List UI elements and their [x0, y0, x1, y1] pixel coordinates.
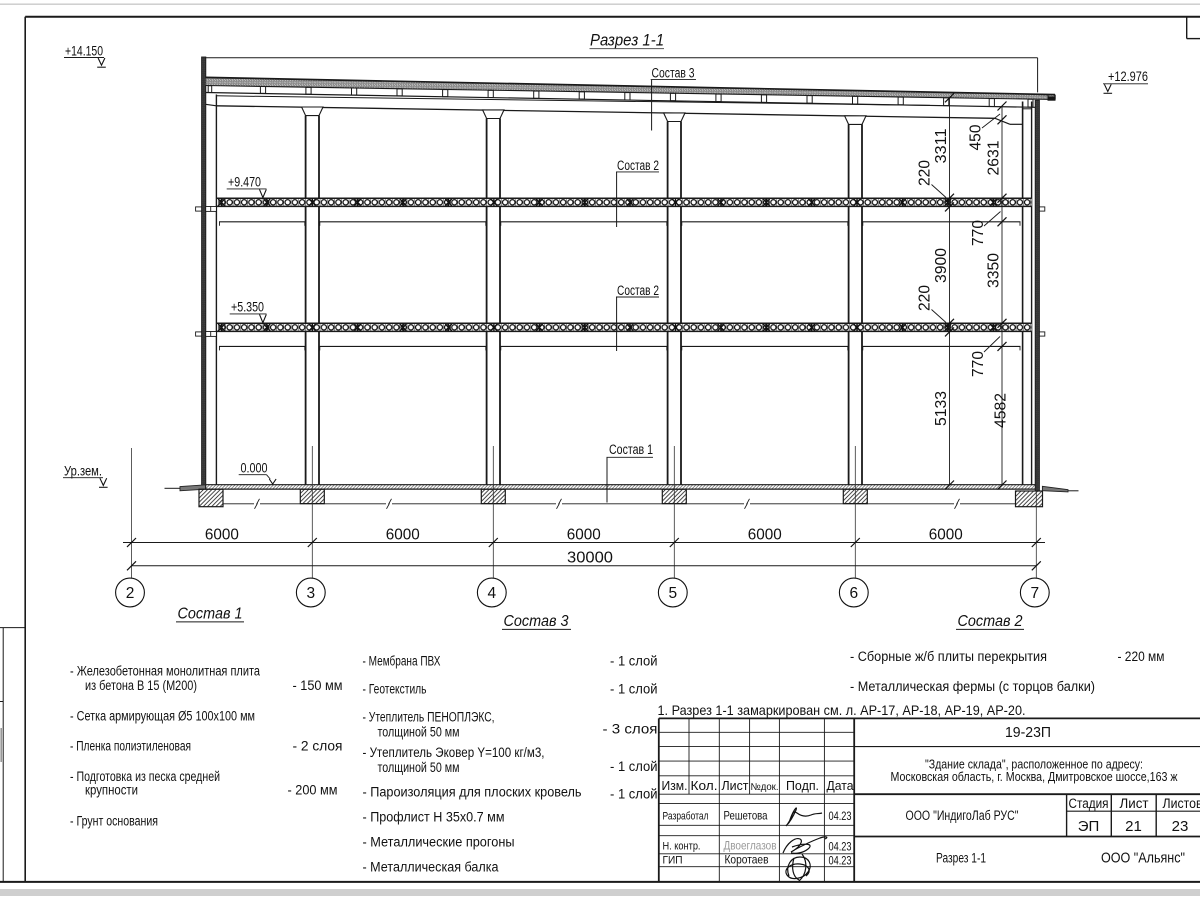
svg-text:- Металлическая фермы (с торцо: - Металлическая фермы (с торцов балки) — [850, 679, 1095, 694]
svg-text:Подп.: Подп. — [786, 778, 819, 793]
svg-text:6000: 6000 — [386, 527, 420, 544]
svg-text:5133: 5133 — [933, 391, 950, 426]
svg-text:- 1 слой: - 1 слой — [610, 654, 658, 669]
svg-text:Московская область, г. Москва,: Московская область, г. Москва, Дмитровск… — [891, 769, 1178, 784]
svg-text:Состав 2: Состав 2 — [617, 283, 659, 298]
svg-text:23: 23 — [1172, 818, 1189, 835]
svg-text:6000: 6000 — [929, 527, 963, 544]
svg-text:0.000: 0.000 — [241, 461, 268, 476]
svg-text:19-23П: 19-23П — [1005, 724, 1051, 741]
svg-text:3900: 3900 — [933, 248, 950, 283]
svg-text:770: 770 — [970, 220, 987, 246]
svg-text:- 200 мм: - 200 мм — [288, 783, 338, 798]
svg-text:21: 21 — [1125, 818, 1142, 835]
svg-text:Разрез 1-1: Разрез 1-1 — [936, 851, 986, 866]
svg-text:Двоеглазов: Двоеглазов — [724, 839, 777, 853]
svg-text:220: 220 — [917, 285, 934, 311]
svg-text:Состав 2: Состав 2 — [958, 613, 1023, 630]
svg-text:04.23: 04.23 — [829, 842, 852, 854]
svg-text:+9.470: +9.470 — [228, 175, 261, 190]
svg-text:+12.976: +12.976 — [1108, 69, 1148, 84]
svg-text:- 2 слоя: - 2 слоя — [293, 739, 343, 754]
svg-text:- 220 мм: - 220 мм — [1118, 649, 1165, 664]
svg-text:Состав 2: Состав 2 — [617, 158, 659, 173]
svg-text:ГИП: ГИП — [663, 855, 683, 867]
svg-text:Листов: Листов — [1163, 796, 1200, 811]
svg-text:6000: 6000 — [748, 527, 782, 544]
svg-text:6000: 6000 — [205, 527, 239, 544]
svg-text:770: 770 — [970, 351, 987, 377]
svg-text:- Геотекстиль: - Геотекстиль — [363, 682, 427, 697]
svg-text:ООО "Альянс": ООО "Альянс" — [1101, 849, 1185, 866]
svg-text:Коротаев: Коротаев — [725, 853, 769, 867]
svg-text:толщиной 50 мм: толщиной 50 мм — [378, 760, 460, 775]
svg-text:5: 5 — [668, 585, 677, 602]
svg-text:Кол.: Кол. — [691, 778, 718, 793]
svg-text:Лист: Лист — [1120, 796, 1149, 811]
svg-text:30000: 30000 — [567, 550, 613, 567]
svg-text:- Мембрана ПВХ: - Мембрана ПВХ — [363, 654, 441, 669]
svg-text:3: 3 — [306, 585, 315, 602]
svg-text:- Металлическая балка: - Металлическая балка — [363, 860, 499, 875]
svg-text:- Грунт основания: - Грунт основания — [70, 814, 158, 829]
svg-text:Ур.зем.: Ур.зем. — [64, 464, 102, 479]
svg-text:4: 4 — [487, 585, 496, 602]
svg-text:220: 220 — [917, 160, 934, 186]
svg-text:- 1 слой: - 1 слой — [610, 682, 658, 697]
svg-text:Решетова: Решетова — [724, 809, 768, 823]
svg-text:6: 6 — [849, 585, 858, 602]
svg-text:- Железобетонная монолитная п: - Железобетонная монолитная плита — [70, 663, 260, 678]
svg-text:450: 450 — [968, 124, 985, 150]
svg-text:- Сетка армирующая Ø5 100х100: - Сетка армирующая Ø5 100х100 мм — [70, 709, 255, 724]
svg-text:04.23: 04.23 — [829, 856, 852, 868]
svg-text:ООО "ИндигоЛаб РУС": ООО "ИндигоЛаб РУС" — [906, 808, 1019, 823]
svg-text:№док.: №док. — [751, 782, 779, 793]
svg-text:3350: 3350 — [986, 253, 1003, 288]
svg-text:- 3 слоя: - 3 слоя — [603, 722, 658, 737]
svg-text:- Пленка полиэтиленовая: - Пленка полиэтиленовая — [70, 739, 191, 754]
svg-text:- 150 мм: - 150 мм — [293, 678, 343, 693]
svg-text:- Пароизоляция для плоских кро: - Пароизоляция для плоских кровель — [363, 785, 582, 800]
svg-text:ЭП: ЭП — [1078, 818, 1100, 835]
svg-text:Разрез 1-1: Разрез 1-1 — [590, 32, 664, 50]
svg-text:2631: 2631 — [986, 141, 1003, 176]
svg-text:Состав 1: Состав 1 — [609, 442, 653, 457]
svg-text:- Утеплитель Эковер Y=100 кг/м: - Утеплитель Эковер Y=100 кг/м3, — [363, 745, 545, 760]
svg-text:4582: 4582 — [993, 393, 1010, 428]
svg-text:- Профлист Н 35х0.7 мм: - Профлист Н 35х0.7 мм — [363, 810, 505, 825]
svg-text:6000: 6000 — [567, 527, 601, 544]
svg-text:крупности: крупности — [85, 783, 138, 798]
svg-text:Разработал: Разработал — [663, 811, 709, 823]
svg-text:7: 7 — [1030, 585, 1039, 602]
svg-text:Состав 1: Состав 1 — [178, 606, 243, 623]
svg-text:Стадия: Стадия — [1069, 796, 1109, 811]
svg-text:Дата: Дата — [827, 778, 855, 793]
svg-text:Состав 3: Состав 3 — [504, 613, 569, 630]
svg-text:04.23: 04.23 — [829, 811, 852, 823]
svg-text:Изм.: Изм. — [662, 778, 688, 793]
svg-text:1. Разрез 1-1 замаркирован см.: 1. Разрез 1-1 замаркирован см. л. АР-17,… — [658, 702, 1026, 718]
svg-text:Н. контр.: Н. контр. — [663, 841, 701, 853]
svg-text:толщиной 50 мм: толщиной 50 мм — [378, 725, 460, 740]
svg-text:- 1 слой: - 1 слой — [610, 787, 658, 802]
svg-text:Лист: Лист — [722, 778, 749, 793]
svg-text:2: 2 — [126, 585, 135, 602]
svg-text:3311: 3311 — [933, 129, 950, 164]
svg-text:- Металлические прогоны: - Металлические прогоны — [363, 835, 515, 850]
svg-text:- Утеплитель ПЕНОПЛЭКС,: - Утеплитель ПЕНОПЛЭКС, — [363, 710, 495, 725]
svg-text:- 1 слой: - 1 слой — [610, 759, 658, 774]
svg-text:из бетона В 15 (М200): из бетона В 15 (М200) — [85, 678, 197, 693]
svg-text:+5.350: +5.350 — [231, 300, 264, 315]
svg-text:- Сборные ж/б плиты перекрытия: - Сборные ж/б плиты перекрытия — [850, 649, 1047, 664]
svg-text:Состав 3: Состав 3 — [652, 66, 695, 81]
svg-text:+14.150: +14.150 — [65, 44, 103, 59]
